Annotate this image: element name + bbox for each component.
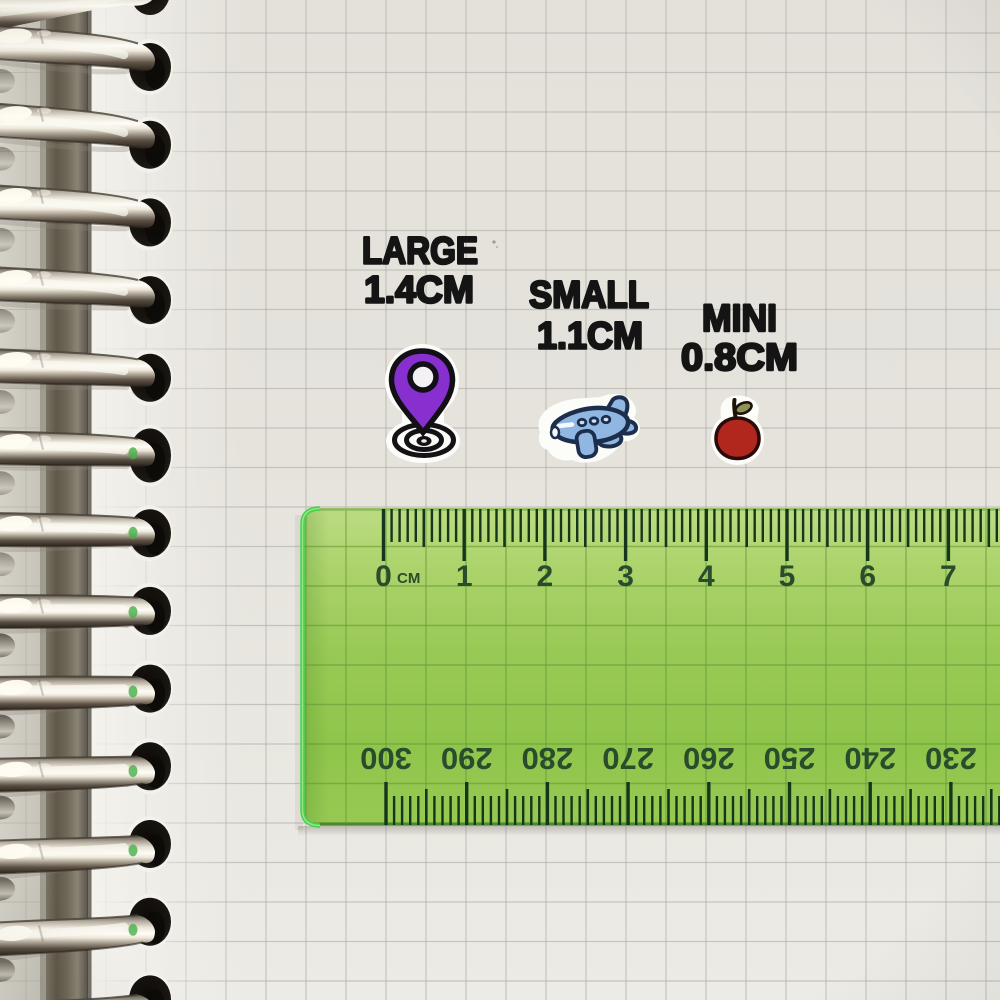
svg-text:240: 240 [844,741,896,776]
svg-text:290: 290 [441,741,493,776]
svg-text:270: 270 [602,741,654,776]
svg-text:260: 260 [683,741,735,776]
svg-text:250: 250 [764,741,816,776]
svg-text:230: 230 [925,741,977,776]
svg-text:280: 280 [522,741,574,776]
svg-text:300: 300 [360,741,412,776]
